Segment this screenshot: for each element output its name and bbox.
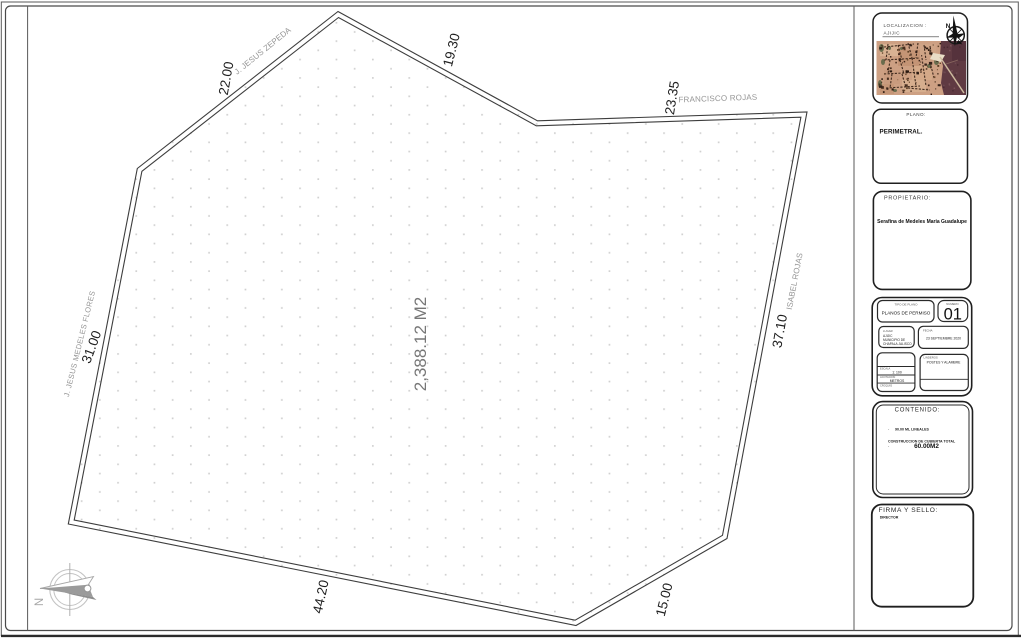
svg-text:Serafina de Medeles Maria Guad: Serafina de Medeles Maria Guadalupe [877,219,967,225]
svg-text:PROPIETARIO:: PROPIETARIO: [884,196,931,202]
svg-text:LINDEROS: LINDEROS [924,356,938,360]
svg-text:CHAPALA JALISCO: CHAPALA JALISCO [883,342,912,346]
svg-text:1: 100: 1: 100 [892,371,902,375]
svg-text:FIRMA Y SELLO:: FIRMA Y SELLO: [879,507,938,514]
svg-text:2,388.12 M2: 2,388.12 M2 [411,297,430,392]
svg-text:AJIJIC: AJIJIC [884,31,901,36]
svg-text:N: N [34,598,46,606]
svg-text:CROQUIS: CROQUIS [880,384,892,388]
svg-text:LUGAR: LUGAR [883,329,893,333]
svg-text:POSTES Y ALAMBRE: POSTES Y ALAMBRE [927,361,962,365]
svg-text:DIRECTOR: DIRECTOR [880,515,899,519]
svg-text:01: 01 [944,306,962,324]
svg-text:ESCALA: ESCALA [880,366,891,370]
svg-text:PLANOS DE PERMISO: PLANOS DE PERMISO [882,311,931,316]
svg-text:90.00 ML LINEALES: 90.00 ML LINEALES [895,428,929,432]
svg-text:PLANO:: PLANO: [906,112,925,117]
svg-text:CONTENIDO:: CONTENIDO: [895,408,941,414]
svg-text:60.00M2: 60.00M2 [914,443,939,450]
svg-text:TIPO DE PLANO: TIPO DE PLANO [894,303,918,307]
svg-text:LOCALIZACION :: LOCALIZACION : [884,23,927,28]
svg-text:FECHA: FECHA [923,329,933,333]
svg-text:PERIMETRAL.: PERIMETRAL. [880,129,923,136]
svg-text:23 SEPTIEMBRE 2020: 23 SEPTIEMBRE 2020 [926,337,961,341]
svg-text:METROS: METROS [890,379,905,383]
